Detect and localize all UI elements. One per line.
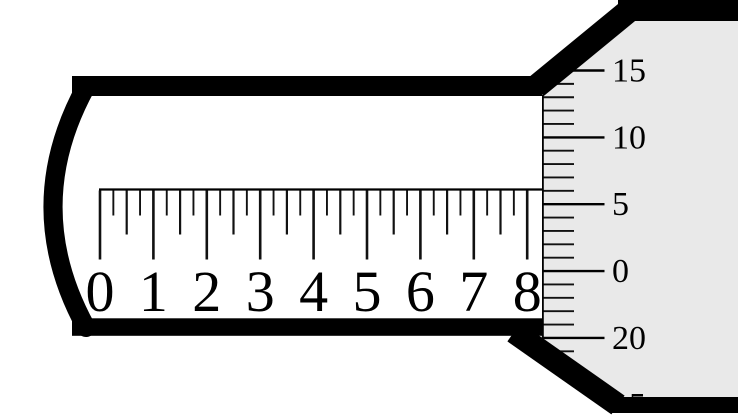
- thimble-scale-number: 20: [612, 320, 646, 357]
- thimble-scale-number: 5: [612, 186, 629, 223]
- main-scale-number: 5: [353, 259, 382, 324]
- micrometer-diagram: 1510502015012345678: [0, 0, 738, 420]
- sleeve-top-frame: [72, 76, 542, 96]
- thimble-bottom-edge: [610, 397, 738, 413]
- thimble-scale-number: 15: [612, 53, 646, 90]
- thimble-scale-number: 0: [612, 253, 629, 290]
- main-scale-number: 8: [513, 259, 542, 324]
- main-scale-number: 2: [192, 259, 221, 324]
- main-scale-number: 7: [459, 259, 488, 324]
- main-scale-number: 3: [246, 259, 275, 324]
- thimble-scale-number: 10: [612, 119, 646, 156]
- thimble-top-edge: [618, 0, 738, 21]
- main-scale-number: 6: [406, 259, 435, 324]
- main-scale-number: 0: [86, 259, 115, 324]
- main-scale-number: 1: [139, 259, 168, 324]
- main-scale: 012345678: [86, 190, 543, 325]
- micrometer-svg: 1510502015012345678: [0, 0, 738, 420]
- main-scale-number: 4: [299, 259, 328, 324]
